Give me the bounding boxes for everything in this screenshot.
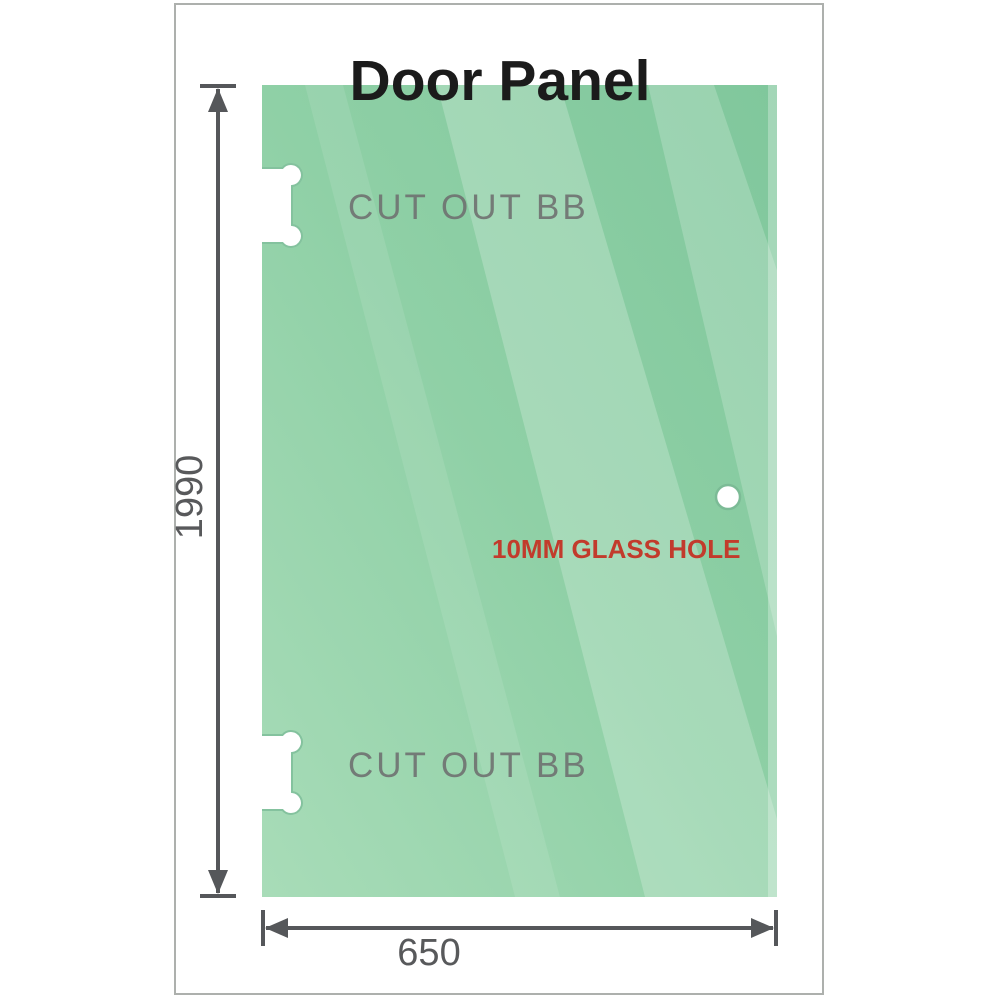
width-dimension-line xyxy=(263,910,776,946)
height-dimension-label: 1990 xyxy=(170,417,210,577)
cutout-top-label: CUT OUT BB xyxy=(348,186,648,230)
page-title: Door Panel xyxy=(176,50,824,112)
glass-hole-label: 10MM GLASS HOLE xyxy=(492,533,732,565)
technical-drawing xyxy=(0,0,1000,1000)
glass-hole xyxy=(716,485,740,509)
width-dimension-label: 650 xyxy=(379,933,479,973)
door-panel-diagram: Door Panel 1990 650 CUT OUT BB CUT OUT B… xyxy=(0,0,1000,1000)
cutout-bottom-label: CUT OUT BB xyxy=(348,744,648,788)
